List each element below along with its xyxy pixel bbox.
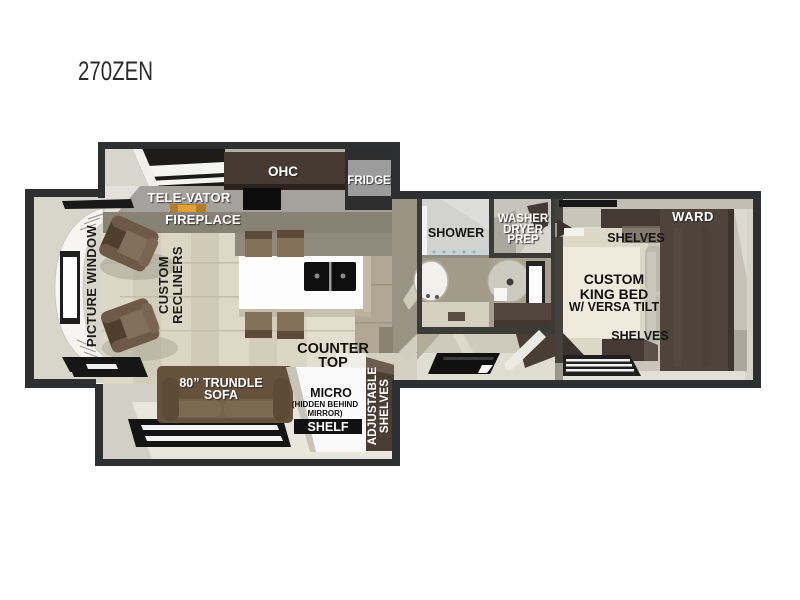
svg-text:OHC: OHC bbox=[268, 164, 298, 179]
svg-text:MICRO: MICRO bbox=[310, 386, 352, 400]
svg-text:CUSTOM: CUSTOM bbox=[156, 256, 171, 314]
svg-text:W/ VERSA TILT: W/ VERSA TILT bbox=[569, 300, 660, 314]
svg-text:SHELF: SHELF bbox=[308, 420, 349, 434]
svg-text:MIRROR): MIRROR) bbox=[307, 409, 342, 418]
svg-text:CUSTOM: CUSTOM bbox=[584, 271, 644, 287]
svg-text:SHELVES: SHELVES bbox=[611, 329, 668, 343]
svg-text:PICTURE WINDOW: PICTURE WINDOW bbox=[84, 225, 99, 347]
svg-text:RECLINERS: RECLINERS bbox=[170, 246, 185, 324]
svg-text:SHOWER: SHOWER bbox=[428, 226, 484, 240]
svg-text:FIREPLACE: FIREPLACE bbox=[165, 212, 241, 227]
svg-text:ADJUSTABLE: ADJUSTABLE bbox=[367, 367, 379, 446]
svg-text:SHELVES: SHELVES bbox=[379, 379, 391, 433]
svg-text:TOP: TOP bbox=[318, 355, 348, 371]
svg-text:TELE-VATOR: TELE-VATOR bbox=[148, 190, 231, 205]
svg-text:(HIDDEN BEHIND: (HIDDEN BEHIND bbox=[292, 400, 358, 409]
svg-text:SOFA: SOFA bbox=[204, 388, 238, 402]
svg-text:FRIDGE: FRIDGE bbox=[347, 175, 391, 187]
svg-text:SHELVES: SHELVES bbox=[607, 231, 664, 245]
svg-text:PREP: PREP bbox=[507, 234, 539, 246]
svg-text:270ZEN: 270ZEN bbox=[78, 56, 153, 86]
svg-text:WARD: WARD bbox=[672, 209, 714, 224]
